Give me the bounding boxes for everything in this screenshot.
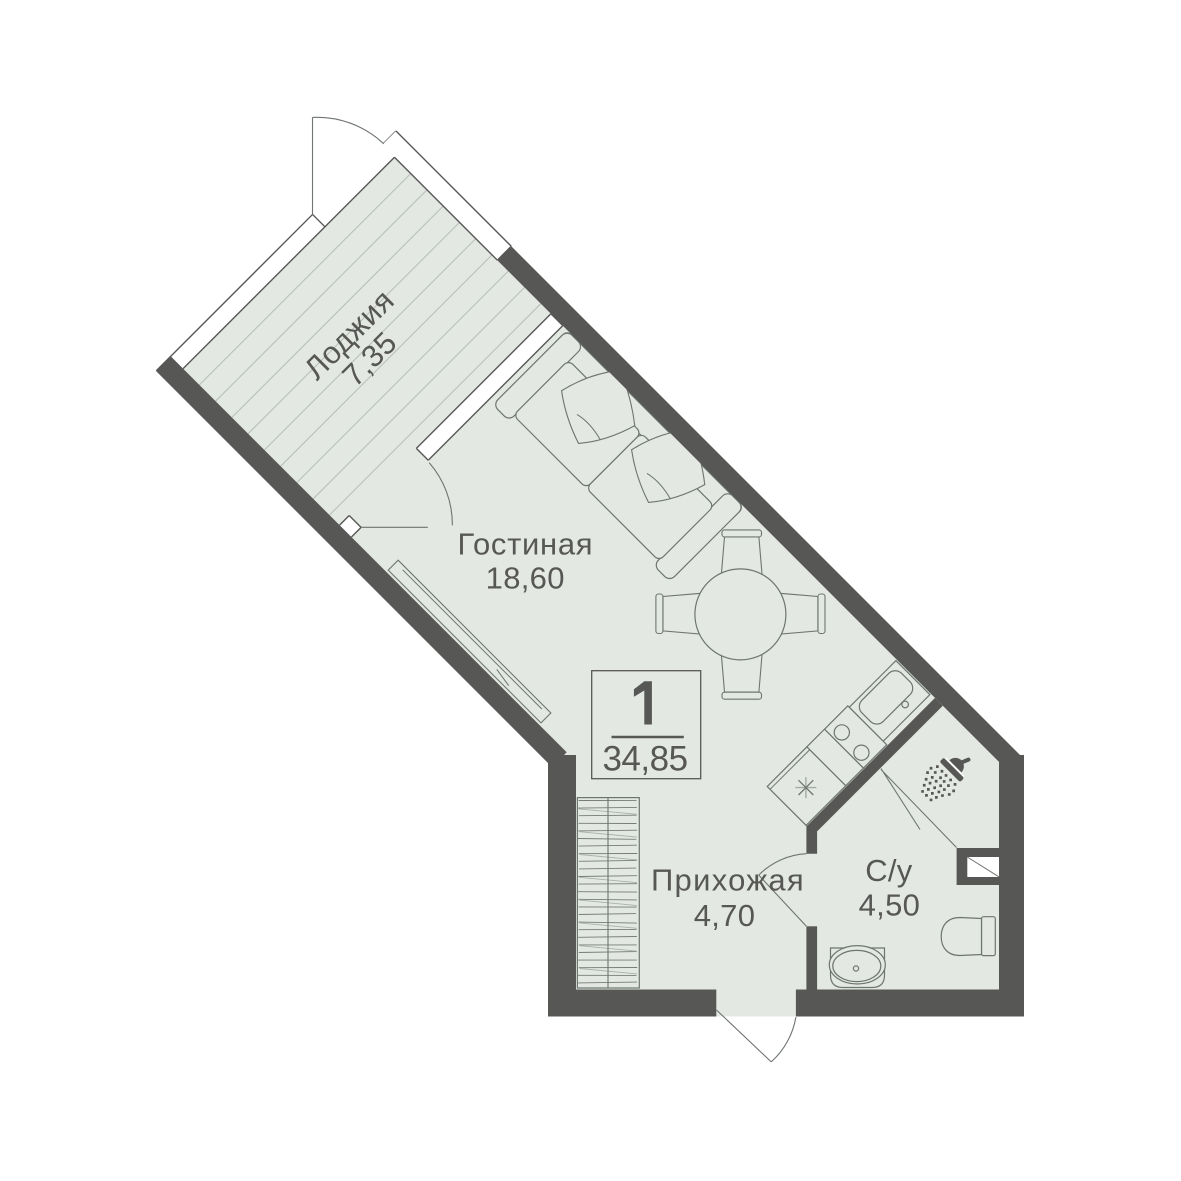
svg-text:С/у: С/у bbox=[865, 853, 913, 888]
svg-text:34,85: 34,85 bbox=[602, 740, 687, 779]
svg-text:4,70: 4,70 bbox=[694, 898, 756, 933]
svg-text:Гостиная: Гостиная bbox=[458, 526, 594, 561]
svg-text:Прихожая: Прихожая bbox=[651, 863, 805, 898]
svg-text:4,50: 4,50 bbox=[859, 887, 921, 922]
svg-text:18,60: 18,60 bbox=[486, 561, 565, 596]
